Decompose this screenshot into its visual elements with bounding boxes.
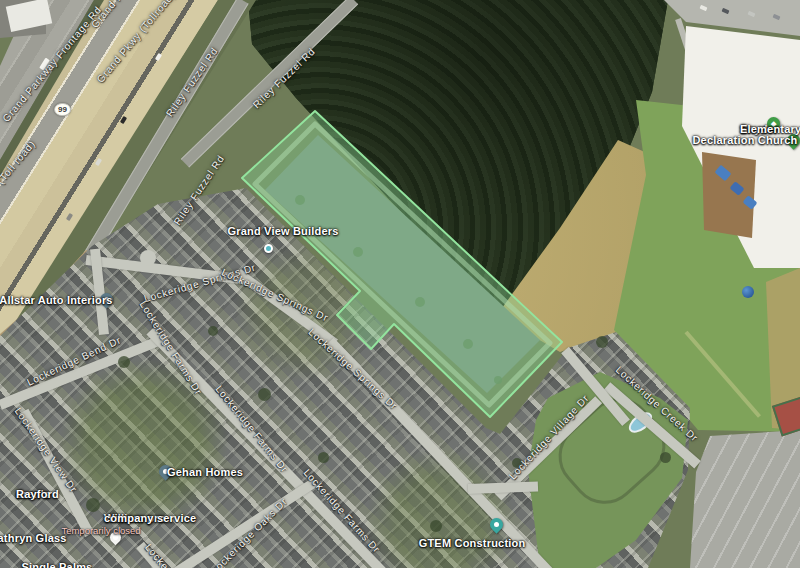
poi-label-gtem-construction[interactable]: GTEM Construction — [419, 537, 526, 549]
poi-label-line: company service — [104, 513, 196, 524]
poi-label-kathryn-glass[interactable]: Kathryn Glass — [0, 532, 67, 544]
blue-dome-structure — [742, 286, 754, 298]
cul-de-sac — [140, 250, 156, 266]
grand-view-dot-icon[interactable] — [264, 244, 273, 253]
tree — [318, 452, 329, 463]
tree — [596, 336, 608, 348]
route-99-shield-icon: 99 — [54, 103, 71, 116]
tree — [430, 520, 442, 532]
tree — [660, 452, 671, 463]
tree — [208, 326, 218, 336]
satellite-map[interactable]: ◆ + Grand View Builders Allstar Auto Int… — [0, 0, 800, 568]
tree — [118, 356, 130, 368]
status-temporarily-closed: Temporarily closed — [61, 525, 140, 536]
tree — [258, 388, 271, 401]
tree — [86, 498, 100, 512]
poi-label-clipped-bottom[interactable]: Single Palms — [22, 561, 93, 568]
poi-label-declaration-church[interactable]: Declaration Church — [692, 134, 797, 146]
poi-label-line: Rayford — [16, 489, 59, 500]
route-99-number: 99 — [58, 105, 67, 114]
poi-label-allstar-auto-interiors[interactable]: Allstar Auto Interiors — [0, 294, 113, 306]
poi-label-gehan-homes[interactable]: Gehan Homes — [167, 466, 243, 478]
poi-label-grand-view-builders[interactable]: Grand View Builders — [227, 225, 338, 237]
